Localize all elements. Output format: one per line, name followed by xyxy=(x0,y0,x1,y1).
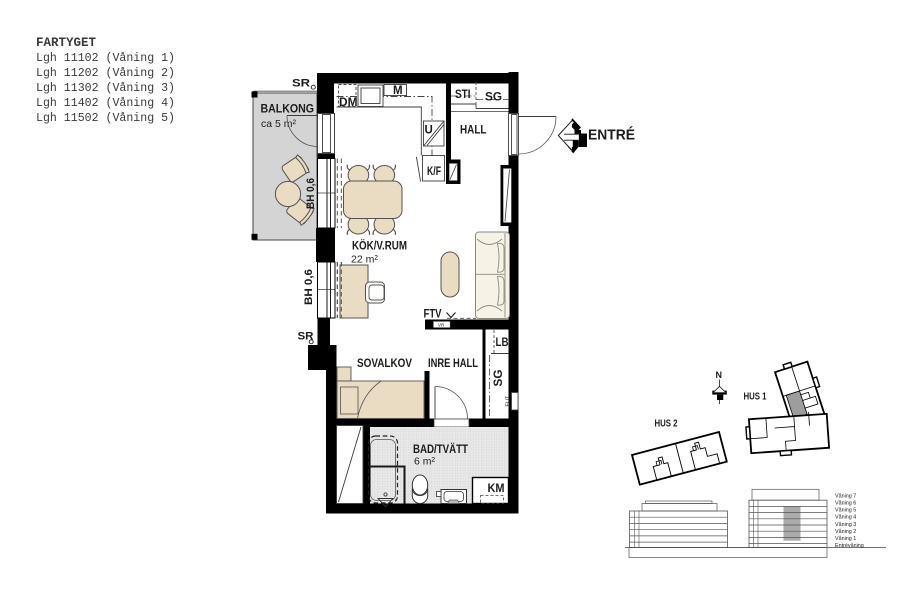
svg-text:SG: SG xyxy=(493,369,505,386)
svg-text:U: U xyxy=(425,125,433,137)
svg-text:Våning 5: Våning 5 xyxy=(835,507,856,514)
svg-text:SG: SG xyxy=(485,92,502,104)
svg-text:BAD/TVÄTT: BAD/TVÄTT xyxy=(413,441,468,456)
svg-text:BALKONG: BALKONG xyxy=(261,102,315,116)
svg-text:FTV: FTV xyxy=(424,309,442,321)
svg-text:BH 0,6: BH 0,6 xyxy=(303,269,315,305)
svg-text:SOVALKOV: SOVALKOV xyxy=(357,356,413,370)
svg-text:Lgh 11102 (Våning 1): Lgh 11102 (Våning 1) xyxy=(36,52,175,65)
svg-text:FARTYGET: FARTYGET xyxy=(36,36,96,50)
svg-text:INRE HALL: INRE HALL xyxy=(428,356,478,370)
svg-text:KÖK/V.RUM: KÖK/V.RUM xyxy=(352,238,407,253)
svg-text:HUS 1: HUS 1 xyxy=(744,391,767,403)
svg-text:HUS 2: HUS 2 xyxy=(655,418,678,430)
svg-text:Våning 7: Våning 7 xyxy=(835,492,856,499)
svg-text:BH 0,6: BH 0,6 xyxy=(305,178,317,209)
svg-text:6 m²: 6 m² xyxy=(414,456,436,468)
svg-text:22 m²: 22 m² xyxy=(351,254,378,266)
svg-text:STI: STI xyxy=(455,89,471,101)
svg-text:Våning 1: Våning 1 xyxy=(835,535,856,542)
svg-text:Lgh 11202 (Våning 2): Lgh 11202 (Våning 2) xyxy=(36,67,175,80)
svg-text:N: N xyxy=(716,370,723,380)
svg-text:VR: VR xyxy=(438,323,445,328)
svg-text:HALL: HALL xyxy=(460,123,487,137)
svg-text:Våning 6: Våning 6 xyxy=(835,500,856,507)
svg-text:ELIT: ELIT xyxy=(506,396,512,407)
svg-text:Lgh 11402 (Våning 4): Lgh 11402 (Våning 4) xyxy=(36,97,175,110)
svg-text:SR: SR xyxy=(298,331,314,343)
svg-text:Entrévåning: Entrévåning xyxy=(835,542,864,549)
svg-text:Våning 4: Våning 4 xyxy=(835,514,856,521)
svg-text:ENTRÉ: ENTRÉ xyxy=(588,127,635,144)
svg-text:Våning 2: Våning 2 xyxy=(835,528,856,535)
svg-text:ca 5 m²: ca 5 m² xyxy=(261,118,297,130)
svg-text:DM: DM xyxy=(339,97,358,109)
svg-text:K/F: K/F xyxy=(427,166,441,178)
svg-text:Lgh 11502 (Våning 5): Lgh 11502 (Våning 5) xyxy=(36,112,175,125)
svg-text:Våning 3: Våning 3 xyxy=(835,521,856,528)
svg-text:KM: KM xyxy=(488,483,505,495)
svg-text:SR: SR xyxy=(292,78,310,90)
svg-text:M: M xyxy=(393,85,403,97)
svg-text:Lgh 11302 (Våning 3): Lgh 11302 (Våning 3) xyxy=(36,82,175,95)
svg-text:LB: LB xyxy=(496,337,509,349)
